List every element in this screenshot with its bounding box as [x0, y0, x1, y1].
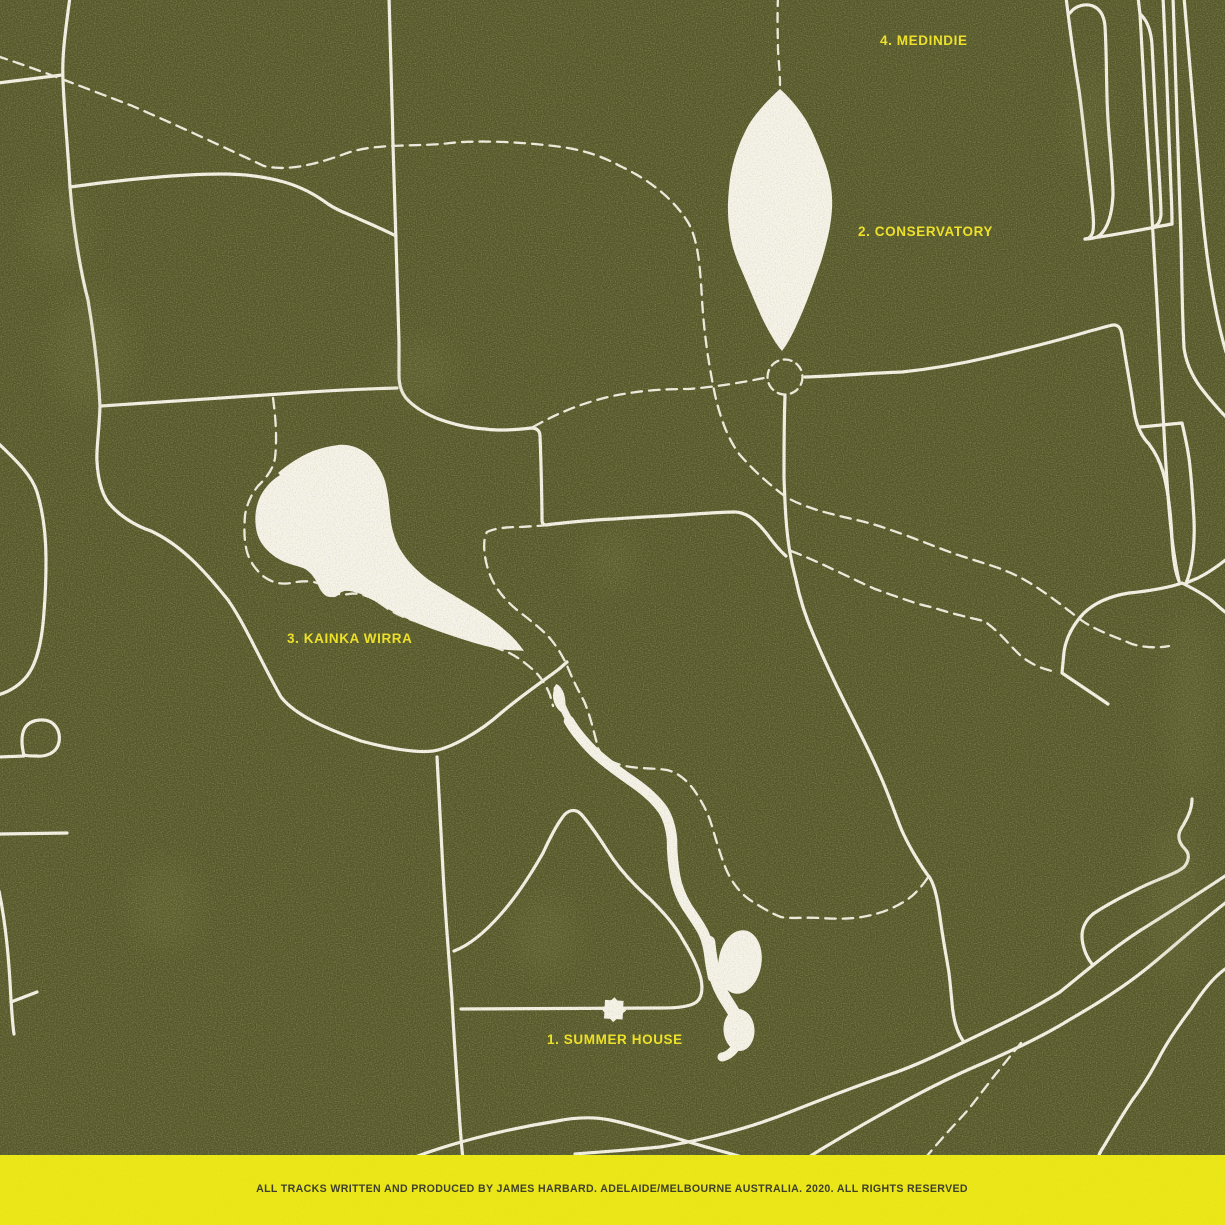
- svg-text:ALL TRACKS WRITTEN AND PRODUCE: ALL TRACKS WRITTEN AND PRODUCED BY JAMES…: [256, 1183, 968, 1195]
